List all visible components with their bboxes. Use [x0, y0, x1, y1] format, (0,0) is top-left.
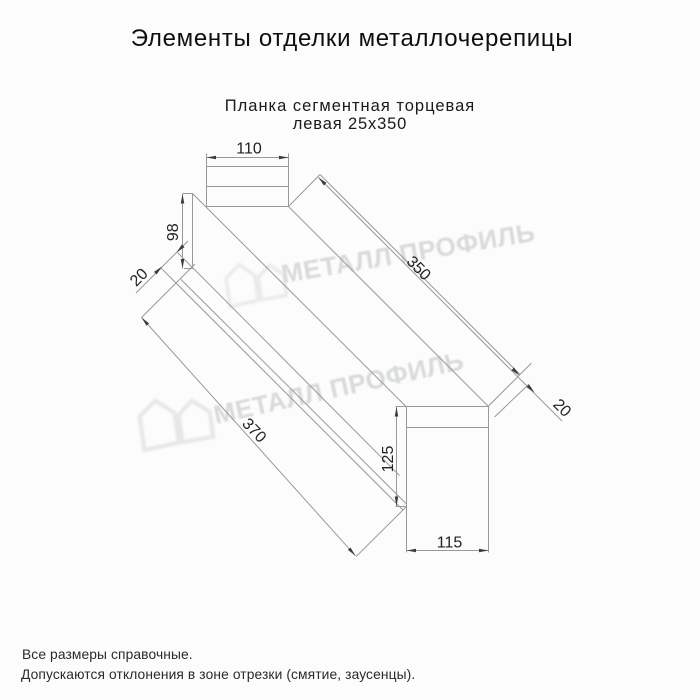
svg-text:110: 110 [236, 141, 262, 158]
svg-text:115: 115 [437, 535, 463, 552]
svg-text:125: 125 [380, 446, 397, 473]
svg-text:МЕТАЛЛ ПРОФИЛЬ: МЕТАЛЛ ПРОФИЛЬ [279, 217, 537, 289]
svg-text:20: 20 [127, 265, 152, 290]
svg-text:20: 20 [549, 396, 574, 421]
svg-text:98: 98 [165, 223, 182, 241]
